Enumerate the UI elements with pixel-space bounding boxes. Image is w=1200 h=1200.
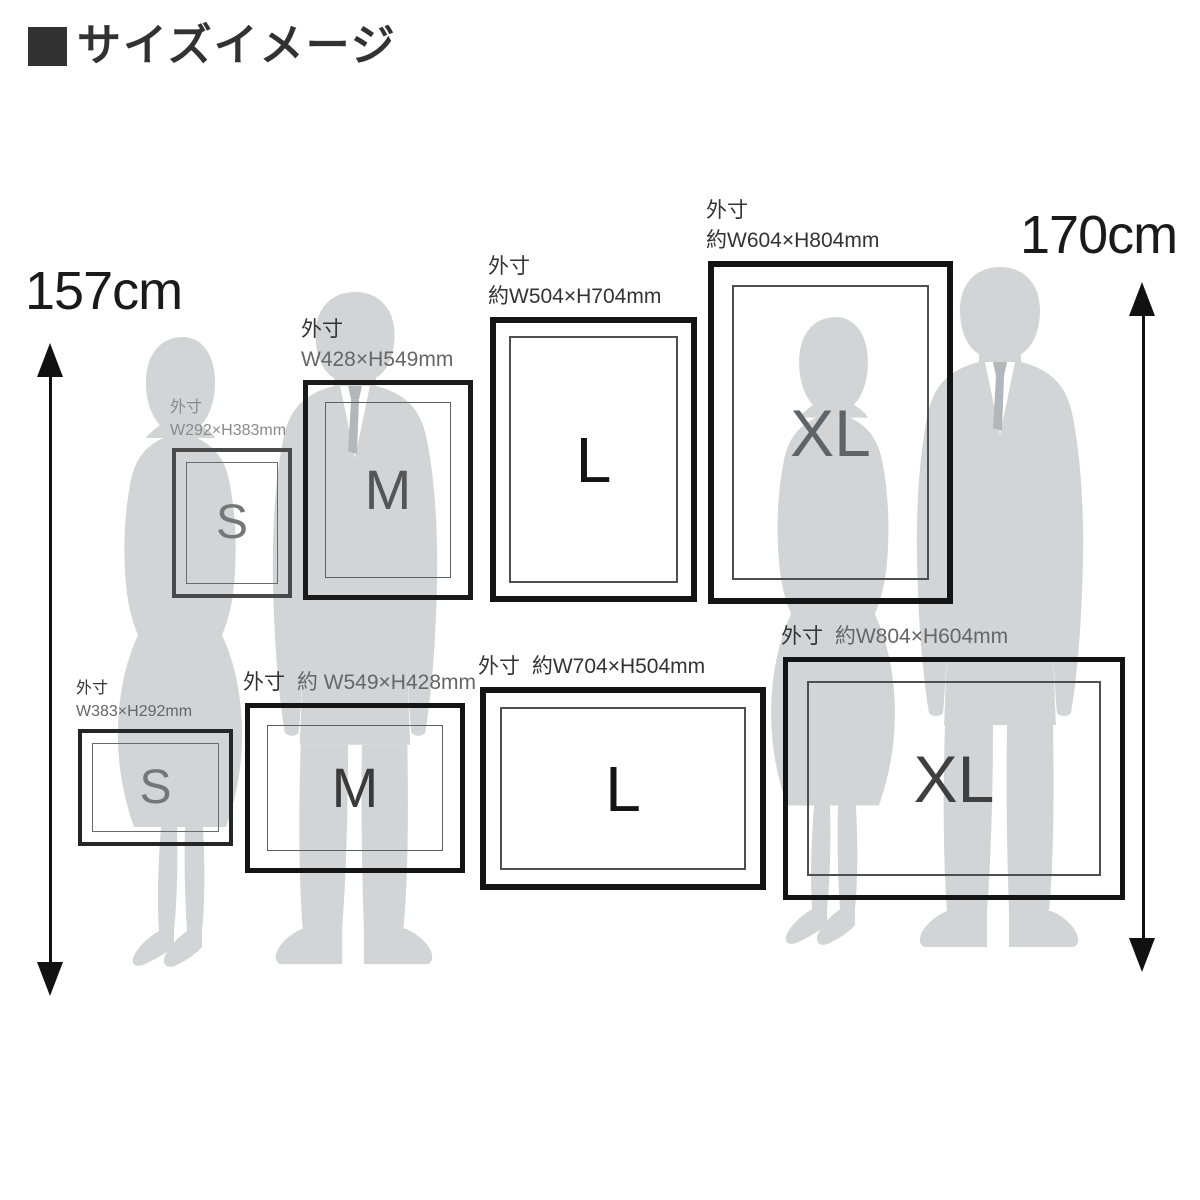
dimension-prefix: 外寸 — [301, 315, 453, 344]
frame-xl-landscape: 外寸 約W804×H604mm XL — [783, 657, 1125, 900]
dimension-prefix: 外寸 — [478, 655, 520, 678]
frame-dimension-label: 外寸 約W804×H604mm — [781, 622, 1008, 651]
arrow-up-icon — [1129, 282, 1155, 316]
arrow-down-icon — [1129, 938, 1155, 972]
frame-dimension-label: 外寸 約W704×H504mm — [478, 652, 705, 681]
frame-dimension-label: 外寸 約 W549×H428mm — [243, 668, 476, 697]
frame-outline: XL — [708, 261, 953, 604]
frame-outline: S — [78, 729, 233, 846]
size-comparison-diagram: { "title": { "marker_icon": "black-squar… — [0, 0, 1200, 1200]
dimension-prefix: 外寸 — [76, 678, 192, 700]
right-height-label: 170cm — [1020, 208, 1177, 262]
frame-outline: M — [303, 380, 473, 600]
frame-outline: L — [490, 317, 697, 602]
frame-xl-portrait: 外寸 約W604×H804mm XL — [708, 261, 953, 604]
frame-size-label: M — [332, 760, 379, 816]
frame-outline: L — [480, 687, 766, 890]
page-title-text: サイズイメージ — [77, 24, 397, 68]
frame-outline: S — [172, 448, 292, 598]
frame-size-label: S — [139, 764, 171, 812]
dimension-value: W428×H549mm — [301, 345, 453, 374]
dimension-prefix: 外寸 — [488, 252, 661, 281]
frame-size-label: XL — [914, 746, 995, 812]
frame-l-landscape: 外寸 約W704×H504mm L — [480, 687, 766, 890]
dimension-value: 約W504×H704mm — [488, 282, 661, 311]
dimension-value: 約 W549×H428mm — [297, 671, 476, 694]
frame-dimension-label: 外寸 約W504×H704mm — [488, 252, 661, 311]
arrow-up-icon — [37, 343, 63, 377]
dimension-value: W383×H292mm — [76, 701, 192, 723]
frame-size-label: S — [216, 499, 248, 547]
dimension-prefix: 外寸 — [170, 397, 286, 419]
frame-m-landscape: 外寸 約 W549×H428mm M — [245, 703, 465, 873]
right-scale-arrow-line — [1142, 313, 1145, 942]
frame-dimension-label: 外寸 約W604×H804mm — [706, 196, 879, 255]
frame-outline: XL — [783, 657, 1125, 900]
frame-size-label: M — [365, 462, 412, 518]
frame-size-label: L — [576, 428, 612, 492]
left-height-label: 157cm — [25, 264, 182, 318]
frame-dimension-label: 外寸 W428×H549mm — [301, 315, 453, 374]
dimension-value: 約W804×H604mm — [835, 625, 1008, 648]
frame-m-portrait: 外寸 W428×H549mm M — [303, 380, 473, 600]
dimension-value: W292×H383mm — [170, 420, 286, 442]
frame-dimension-label: 外寸 W292×H383mm — [170, 397, 286, 442]
frame-size-label: L — [605, 757, 641, 821]
dimension-prefix: 外寸 — [243, 671, 285, 694]
dimension-value: 約W604×H804mm — [706, 226, 879, 255]
black-square-icon — [28, 27, 67, 66]
frame-dimension-label: 外寸 W383×H292mm — [76, 678, 192, 723]
frame-s-portrait: 外寸 W292×H383mm S — [172, 448, 292, 598]
frame-outline: M — [245, 703, 465, 873]
frame-size-label: XL — [790, 400, 871, 466]
dimension-value: 約W704×H504mm — [532, 655, 705, 678]
arrow-down-icon — [37, 962, 63, 996]
dimension-prefix: 外寸 — [706, 196, 879, 225]
frame-l-portrait: 外寸 約W504×H704mm L — [490, 317, 697, 602]
frame-s-landscape: 外寸 W383×H292mm S — [78, 729, 233, 846]
page-title: サイズイメージ — [28, 24, 397, 68]
dimension-prefix: 外寸 — [781, 625, 823, 648]
left-scale-arrow-line — [49, 374, 52, 966]
